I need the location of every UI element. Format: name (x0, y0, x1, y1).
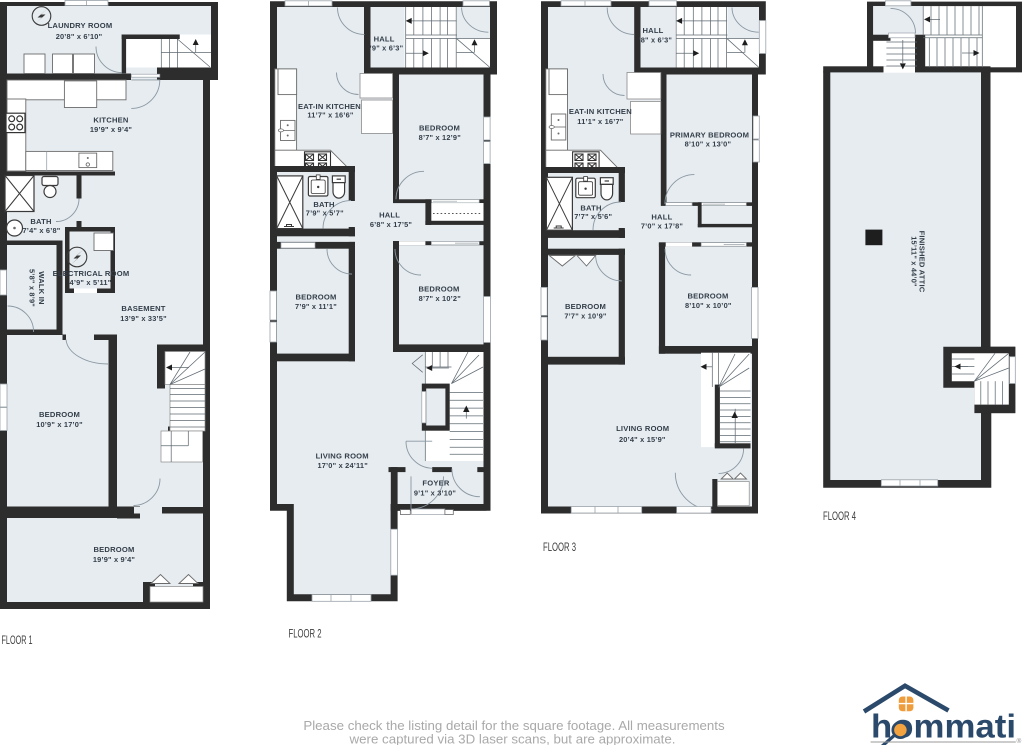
svg-text:6’8" x 17’5": 6’8" x 17’5" (370, 220, 413, 229)
svg-text:7’7" x 10’9": 7’7" x 10’9" (564, 312, 607, 321)
svg-text:WALK IN: WALK IN (37, 271, 46, 304)
svg-text:’9" x 6’3": ’9" x 6’3" (370, 44, 404, 53)
svg-text:LIVING ROOM: LIVING ROOM (316, 451, 369, 460)
svg-text:BEDROOM: BEDROOM (419, 124, 460, 133)
svg-text:7’7" x 5’6": 7’7" x 5’6" (574, 212, 612, 221)
svg-text:7’9" x 5’7": 7’9" x 5’7" (306, 209, 344, 218)
svg-text:were captured via 3D laser sca: were captured via 3D laser scans, but ar… (349, 732, 676, 745)
svg-text:HALL: HALL (379, 211, 400, 220)
svg-text:’8" x 6’3": ’8" x 6’3" (638, 35, 672, 44)
svg-text:19’9" x 9’4": 19’9" x 9’4" (90, 125, 133, 134)
svg-text:11’1" x 16’7": 11’1" x 16’7" (577, 117, 623, 126)
svg-text:BEDROOM: BEDROOM (565, 302, 606, 311)
svg-text:BEDROOM: BEDROOM (687, 291, 728, 300)
svg-text:BEDROOM: BEDROOM (93, 545, 134, 554)
svg-text:HALL: HALL (374, 35, 395, 44)
svg-text:8’10" x 10’0": 8’10" x 10’0" (685, 301, 732, 310)
svg-text:BEDROOM: BEDROOM (418, 285, 459, 294)
svg-text:FOYER: FOYER (422, 479, 449, 488)
svg-text:ELECTRICAL ROOM: ELECTRICAL ROOM (53, 269, 130, 278)
svg-text:BATH: BATH (30, 217, 51, 226)
svg-text:PRIMARY BEDROOM: PRIMARY BEDROOM (670, 130, 749, 139)
svg-text:10’9" x 17’0": 10’9" x 17’0" (36, 420, 83, 429)
svg-text:7’9" x 11’1": 7’9" x 11’1" (295, 302, 337, 311)
svg-text:19’9" x 9’4": 19’9" x 9’4" (93, 555, 136, 564)
svg-text:LIVING ROOM: LIVING ROOM (616, 424, 669, 433)
svg-text:FLOOR 3: FLOOR 3 (543, 540, 576, 554)
svg-text:20’8" x 6’10": 20’8" x 6’10" (56, 32, 103, 41)
svg-text:FLOOR 2: FLOOR 2 (289, 627, 322, 641)
svg-text:17’0" x 24’11": 17’0" x 24’11" (317, 461, 368, 470)
svg-text:BEDROOM: BEDROOM (295, 293, 336, 302)
svg-text:BEDROOM: BEDROOM (39, 410, 80, 419)
svg-text:FLOOR 1: FLOOR 1 (2, 633, 33, 647)
svg-text:13’9" x 33’5": 13’9" x 33’5" (120, 314, 167, 323)
svg-text:LAUNDRY ROOM: LAUNDRY ROOM (48, 21, 113, 30)
svg-text:8’7" x 12’9": 8’7" x 12’9" (419, 133, 462, 142)
svg-text:11’7" x 16’6": 11’7" x 16’6" (307, 110, 353, 119)
svg-text:9’1" x 3’10": 9’1" x 3’10" (414, 489, 457, 498)
svg-text:BASEMENT: BASEMENT (121, 304, 165, 313)
svg-text:KITCHEN: KITCHEN (93, 116, 128, 125)
svg-text:®: ® (1017, 737, 1022, 745)
svg-text:HALL: HALL (642, 26, 663, 35)
svg-text:8’10" x 13’0": 8’10" x 13’0" (685, 140, 732, 149)
svg-text:8’7" x 10’2": 8’7" x 10’2" (419, 294, 462, 303)
svg-text:EAT-IN KITCHEN: EAT-IN KITCHEN (569, 107, 632, 116)
svg-text:20’4" x 15’9": 20’4" x 15’9" (619, 435, 666, 444)
svg-text:5’8" x 8’9": 5’8" x 8’9" (28, 269, 37, 307)
svg-text:7’0" x 17’8": 7’0" x 17’8" (641, 222, 684, 231)
svg-text:15’11" x 44’0": 15’11" x 44’0" (910, 236, 919, 287)
svg-text:7’4" x 6’8": 7’4" x 6’8" (23, 226, 61, 235)
svg-text:HALL: HALL (651, 212, 672, 221)
svg-text:4’9" x 5’11": 4’9" x 5’11" (70, 278, 112, 287)
svg-text:FLOOR 4: FLOOR 4 (823, 509, 856, 523)
